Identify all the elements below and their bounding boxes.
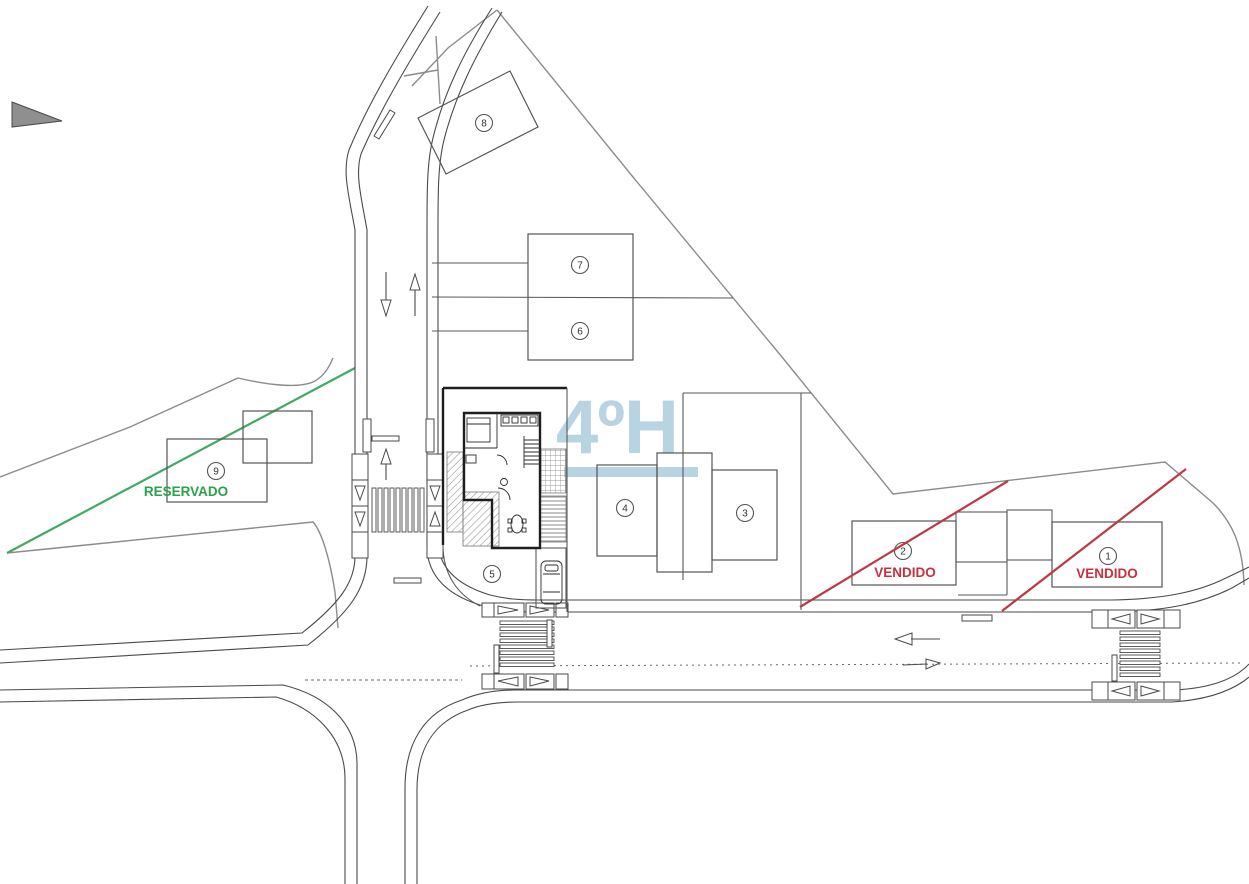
crosswalk-centre: [482, 603, 568, 689]
lot-number: 7: [577, 261, 583, 272]
terrace-grid: [541, 449, 566, 493]
road-edge: [0, 685, 357, 884]
crosswalk-east: [1092, 610, 1180, 700]
lot-number: 2: [900, 547, 906, 558]
road-edge: [0, 12, 440, 663]
plan-drawing: 8 7 6 9 RESERVADO 4 3: [0, 0, 1249, 884]
road-edge: [417, 677, 1249, 884]
arrow-down-icon: [381, 272, 391, 316]
central-block: [657, 453, 712, 572]
lot-status-label: RESERVADO: [144, 484, 228, 499]
zebra-stripes: [372, 488, 424, 532]
site-plan: 4ºH: [0, 0, 1249, 884]
refuge-bar: [494, 645, 499, 673]
refuge-bar: [547, 620, 552, 647]
lot-number: 4: [622, 504, 628, 515]
garage: [536, 548, 566, 608]
lot-8[interactable]: 8: [418, 71, 538, 174]
sold-strike-line: [800, 481, 1008, 607]
show-house-parcel: [443, 388, 567, 612]
lot-number: 8: [481, 119, 487, 130]
lot-5[interactable]: 5: [484, 566, 501, 583]
arrow-up-small-icon: [381, 449, 391, 480]
lot-number: 1: [1105, 552, 1111, 563]
lot-number: 6: [577, 327, 583, 338]
lot-9[interactable]: 9 RESERVADO: [144, 411, 312, 502]
lot-2[interactable]: 2 VENDIDO: [800, 481, 1008, 607]
layby-marker: [426, 419, 434, 452]
zebra-stripes: [500, 621, 554, 667]
zebra-stripes: [1120, 631, 1160, 677]
stop-bar: [372, 436, 399, 441]
lot-status-label: VENDIDO: [874, 565, 936, 580]
patio-hatch: [447, 452, 463, 532]
stop-bar: [394, 578, 421, 583]
lot-4[interactable]: 4: [597, 465, 657, 556]
lot-1[interactable]: 1 VENDIDO: [1002, 469, 1186, 611]
road-edge: [0, 697, 345, 884]
kerb-gap-marker: [374, 110, 395, 139]
car-icon: [541, 561, 562, 604]
ramp-stripes: [540, 496, 566, 542]
lot-3[interactable]: 3: [712, 470, 777, 560]
arrow-left-icon: [895, 633, 940, 645]
lot-number: 9: [213, 467, 219, 478]
layby-marker: [363, 419, 371, 452]
north-arrow-icon: [12, 102, 62, 127]
refuge-bar: [1112, 655, 1117, 681]
lot-status-label: VENDIDO: [1076, 566, 1138, 581]
lot-7[interactable]: 7: [528, 234, 633, 360]
arrow-up-icon: [410, 274, 420, 316]
lot-number: 5: [489, 570, 495, 581]
lot-number: 3: [742, 509, 748, 520]
kerb-marker: [962, 615, 992, 621]
